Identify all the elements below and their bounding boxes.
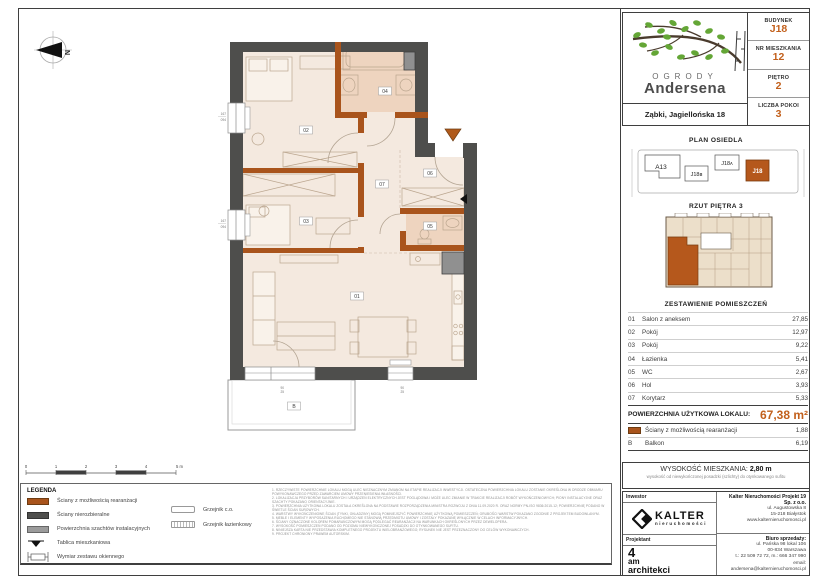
unit-facts: BUDYNEKJ18 NR MIESZKANIA12 PIĘTRO2 LICZB… [748,13,809,125]
companies-left-col: Inwestor KALTER nieruchomości Projektant… [623,492,717,575]
room-area: 3,93 [796,382,808,389]
rooms-table-title: ZESTAWIENIE POMIESZCZEŃ [622,301,810,308]
svg-text:094: 094 [221,118,227,122]
balcony-no: B [628,440,645,447]
note-line: 2. LOKALIZACJA PRZYBORÓW SANITARNYCH I U… [272,496,610,504]
companies-right-col: Kalter Nieruchomości Projekt 19 Sp. z o.… [717,492,809,575]
sales-line: email: andersena@kalternieruchomosci.pl [720,561,806,573]
svg-text:25: 25 [280,390,284,394]
room-name: Łazienka [642,356,796,363]
note-line: 9. PROJEKT CHRONIONY PRAWEM AUTORSKIM. [272,532,610,536]
table-row: 04Łazienka5,41 [628,353,808,366]
svg-text:094: 094 [221,225,227,229]
ceiling-height-box: WYSOKOŚĆ MIESZKANIA: 2,80 m wysokość od … [622,462,810,489]
shaft-bathroom [404,52,415,70]
kalter-name: KALTER [655,511,707,521]
room-name: Salon z aneksem [642,316,792,323]
balcony-label: Balkon [645,440,796,447]
companies-block: Inwestor KALTER nieruchomości Projektant… [622,491,810,576]
svg-text:02: 02 [303,128,309,134]
room-no: 02 [628,329,642,336]
svg-text:04: 04 [382,89,388,95]
legend-item: Wymiar zestawu okiennego [27,550,605,564]
legend-label: Ściany z możliwością rearanżacji [57,498,137,504]
room-no: 05 [628,369,642,376]
rearrangeable-walls-row: Ściany z możliwością rearanżacji1,88 [628,424,808,437]
site-plan-map: A13 J18ʙ J18ᴀ J18 [628,147,808,201]
fact-apartment-no: NR MIESZKANIA12 [748,41,809,69]
site-plan-title: PLAN OSIEDLA [622,137,810,144]
room-label-05: 05 [424,222,437,230]
radiator-co-icon [171,506,195,513]
legend-label: Tablica mieszkaniowa [57,540,110,546]
room-no: 03 [628,342,642,349]
brand-andersena: Andersena [623,81,747,96]
fact-value: J18 [770,24,788,35]
fact-rooms: LICZBA POKOI3 [748,98,809,125]
developer-line: www.kalternieruchomosci.pl [720,518,806,524]
fact-value: 3 [776,109,782,120]
room-label-06: 06 [424,169,437,177]
legend-label: Ściany nierozbieralne [57,512,110,518]
investor-label: Inwestor [623,492,716,503]
svg-text:1: 1 [55,464,58,469]
scale-bar: 0 1 2 3 4 5 m [24,463,194,479]
building-j18a-label: J18ᴀ [721,161,733,167]
balcony-area: 6,19 [796,440,808,447]
svg-text:4: 4 [145,464,148,469]
shaft-kitchen [442,252,464,274]
architect-logo: 4 am architekci [623,546,716,575]
table-row: 02Pokój12,97 [628,326,808,339]
room-area: 5,33 [796,395,808,402]
architect-word: architekci [628,566,716,575]
kalter-logo: KALTER nieruchomości [623,503,716,535]
room-label-07: 07 [376,180,389,188]
apartment-floor-plan: N 167094 167094 9025 9025 01 02 03 04 05… [18,8,620,458]
rooms-table: 01Salon z aneksem27,85 02Pokój12,97 03Po… [628,312,808,451]
sales-office: Biuro sprzedaży: ul. Pańska 98 lokal 106… [717,534,809,575]
balcony-row: BBalkon6,19 [628,438,808,451]
fact-building: BUDYNEKJ18 [748,13,809,41]
floor-plan-sheet: { "colors": {"accent":"#c2601c","wall_or… [0,0,830,587]
structural-wall-swatch-icon [27,512,49,519]
table-row: 06Hol3,93 [628,379,808,392]
fact-value: 2 [776,81,782,92]
legend-item: Tablica mieszkaniowa [27,536,605,550]
floor-thumbnail [665,213,775,291]
table-row: 01Salon z aneksem27,85 [628,313,808,326]
legend-label: Grzejnik c.o. [203,507,234,513]
architect-4: 4 [628,548,716,558]
shaft-swatch-icon [27,526,49,533]
svg-text:01: 01 [354,294,360,300]
fact-floor: PIĘTRO2 [748,70,809,98]
disclaimer-notes: 1. RZECZYWISTE POWIERZCHNIE LOKALU MOGĄ … [272,488,610,536]
north-arrow-icon: N [34,31,72,69]
room-no: 06 [628,382,642,389]
header-box: OGRODY Andersena Ząbki, Jagiellońska 18 … [622,12,810,126]
svg-text:25: 25 [400,390,404,394]
window-dimension-icon [27,551,49,563]
total-area-row: POWIERZCHNIA UŻYTKOWA LOKALU:67,38 m² [628,405,808,424]
radiator-bathroom-icon [171,521,195,528]
svg-text:07: 07 [379,182,385,188]
floor-thumb-title: RZUT PIĘTRA 3 [622,203,810,210]
room-no: 01 [628,316,642,323]
room-area: 5,41 [796,356,808,363]
total-area-value: 67,38 m² [760,408,808,422]
developer-name: Kalter Nieruchomości Projekt 19 Sp. z o.… [720,494,806,506]
north-label: N [63,50,70,55]
project-address: Ząbki, Jagiellońska 18 [623,103,747,125]
svg-text:05: 05 [427,224,433,230]
room-label-balcony: B [288,402,301,410]
svg-text:167: 167 [221,112,227,116]
room-label-02: 02 [300,126,313,134]
room-no: 07 [628,395,642,402]
room-name: Pokój [642,329,792,336]
room-area: 27,85 [792,316,808,323]
kalter-diamond-icon [632,509,652,529]
legend-label: Powierzchnia szachtów instalacyjnych [57,526,150,532]
room-name: Hol [642,382,796,389]
svg-text:0: 0 [25,464,28,469]
orange-swatch-icon [628,427,641,434]
note-line: 3. POWIERZCHNIA UŻYTKOWA LOKALU ZOSTAŁA … [272,504,610,512]
brand-block: OGRODY Andersena Ząbki, Jagiellońska 18 [623,13,748,125]
height-note: wysokość od niewykończonej posadzki (szl… [623,474,809,479]
room-name: WC [642,369,796,376]
room-no: 04 [628,356,642,363]
table-row: 03Pokój9,22 [628,340,808,353]
svg-text:03: 03 [303,219,309,225]
designer-label: Projektant [623,535,716,546]
building-a13-label: A13 [655,164,667,171]
room-area: 12,97 [792,329,808,336]
total-area-label: POWIERZCHNIA UŻYTKOWA LOKALU: [628,411,760,418]
room-label-01: 01 [351,292,364,300]
table-row: 07Korytarz5,33 [628,393,808,406]
svg-text:5 m: 5 m [176,464,183,469]
developer-address: Kalter Nieruchomości Projekt 19 Sp. z o.… [717,492,809,534]
room-name: Pokój [642,342,796,349]
building-j18b-label: J18ʙ [691,172,703,178]
room-label-03: 03 [300,217,313,225]
building-j18-label: J18 [752,169,763,175]
note-line: 1. RZECZYWISTE POWIERZCHNIE LOKALU MOGĄ … [272,488,610,496]
kalter-sub: nieruchomości [655,521,707,526]
room-label-04: 04 [379,87,392,95]
height-value: 2,80 m [750,466,772,473]
rearr-label: Ściany z możliwością rearanżacji [645,427,796,434]
table-row: 05WC2,67 [628,366,808,379]
svg-text:2: 2 [85,464,88,469]
height-label: WYSOKOŚĆ MIESZKANIA: [660,466,748,473]
rearr-area: 1,88 [796,427,808,434]
apartment-board-icon [27,539,45,548]
legend-label: Wymiar zestawu okiennego [57,554,124,560]
legend-label: Grzejnik łazienkowy [203,522,252,528]
svg-text:3: 3 [115,464,118,469]
tree-logo-icon [623,13,747,73]
room-name: Korytarz [642,395,796,402]
fact-value: 12 [773,52,785,63]
room-area: 9,22 [796,342,808,349]
svg-text:06: 06 [427,171,433,177]
svg-text:167: 167 [221,219,227,223]
sidebar-divider [620,8,621,576]
rearrangeable-wall-swatch-icon [27,498,49,505]
room-area: 2,67 [796,369,808,376]
